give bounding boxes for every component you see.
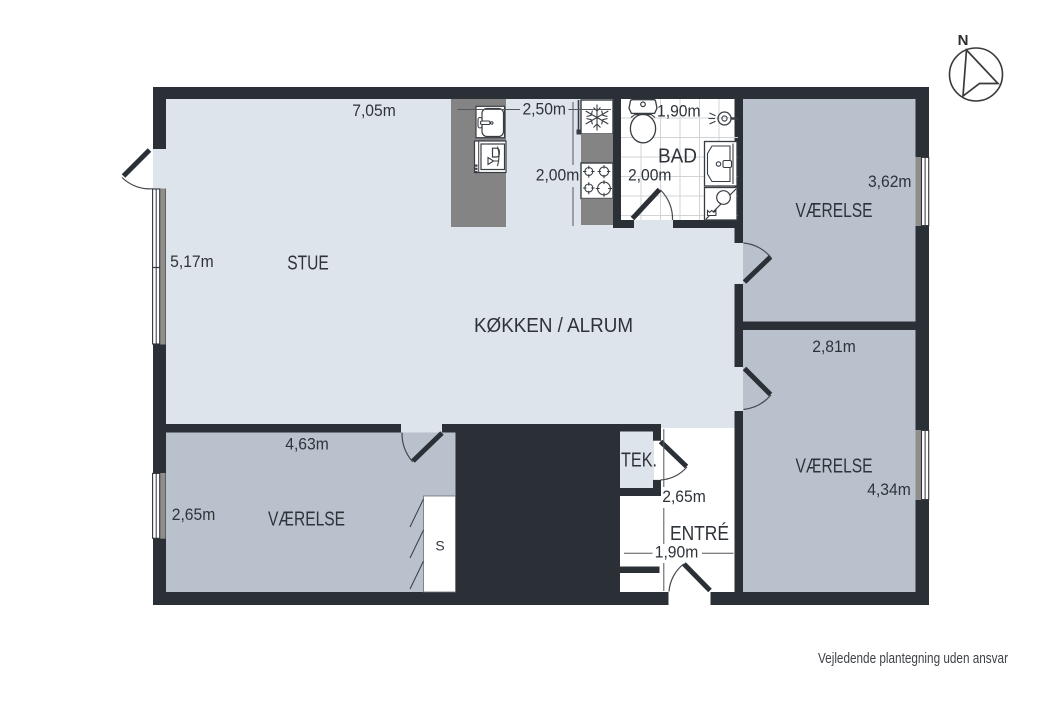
svg-text:1,90m: 1,90m bbox=[657, 103, 701, 121]
svg-text:4,63m: 4,63m bbox=[285, 436, 329, 454]
svg-text:7,05m: 7,05m bbox=[352, 102, 396, 120]
svg-text:VÆRELSE: VÆRELSE bbox=[796, 200, 873, 222]
svg-text:TEK.: TEK. bbox=[621, 450, 657, 472]
svg-text:3,62m: 3,62m bbox=[868, 173, 912, 191]
svg-text:VÆRELSE: VÆRELSE bbox=[796, 456, 873, 478]
svg-text:4,34m: 4,34m bbox=[867, 481, 911, 499]
svg-text:Vejledende plantegning uden an: Vejledende plantegning uden ansvar bbox=[818, 651, 1008, 667]
svg-text:VÆRELSE: VÆRELSE bbox=[268, 509, 345, 531]
svg-text:S: S bbox=[435, 538, 444, 554]
svg-text:ENTRÉ: ENTRÉ bbox=[670, 522, 729, 545]
svg-text:2,00m: 2,00m bbox=[536, 167, 580, 185]
svg-text:STUE: STUE bbox=[287, 253, 329, 275]
svg-text:5,17m: 5,17m bbox=[170, 253, 214, 271]
svg-text:KØKKEN / ALRUM: KØKKEN / ALRUM bbox=[474, 315, 633, 337]
svg-text:1,90m: 1,90m bbox=[655, 544, 699, 562]
svg-text:2,81m: 2,81m bbox=[812, 338, 856, 356]
svg-text:2,65m: 2,65m bbox=[172, 506, 216, 524]
svg-text:2,50m: 2,50m bbox=[522, 101, 566, 119]
svg-text:N: N bbox=[958, 32, 969, 49]
svg-text:2,65m: 2,65m bbox=[662, 488, 706, 506]
svg-text:BAD: BAD bbox=[658, 146, 697, 168]
svg-text:2,00m: 2,00m bbox=[628, 167, 672, 185]
